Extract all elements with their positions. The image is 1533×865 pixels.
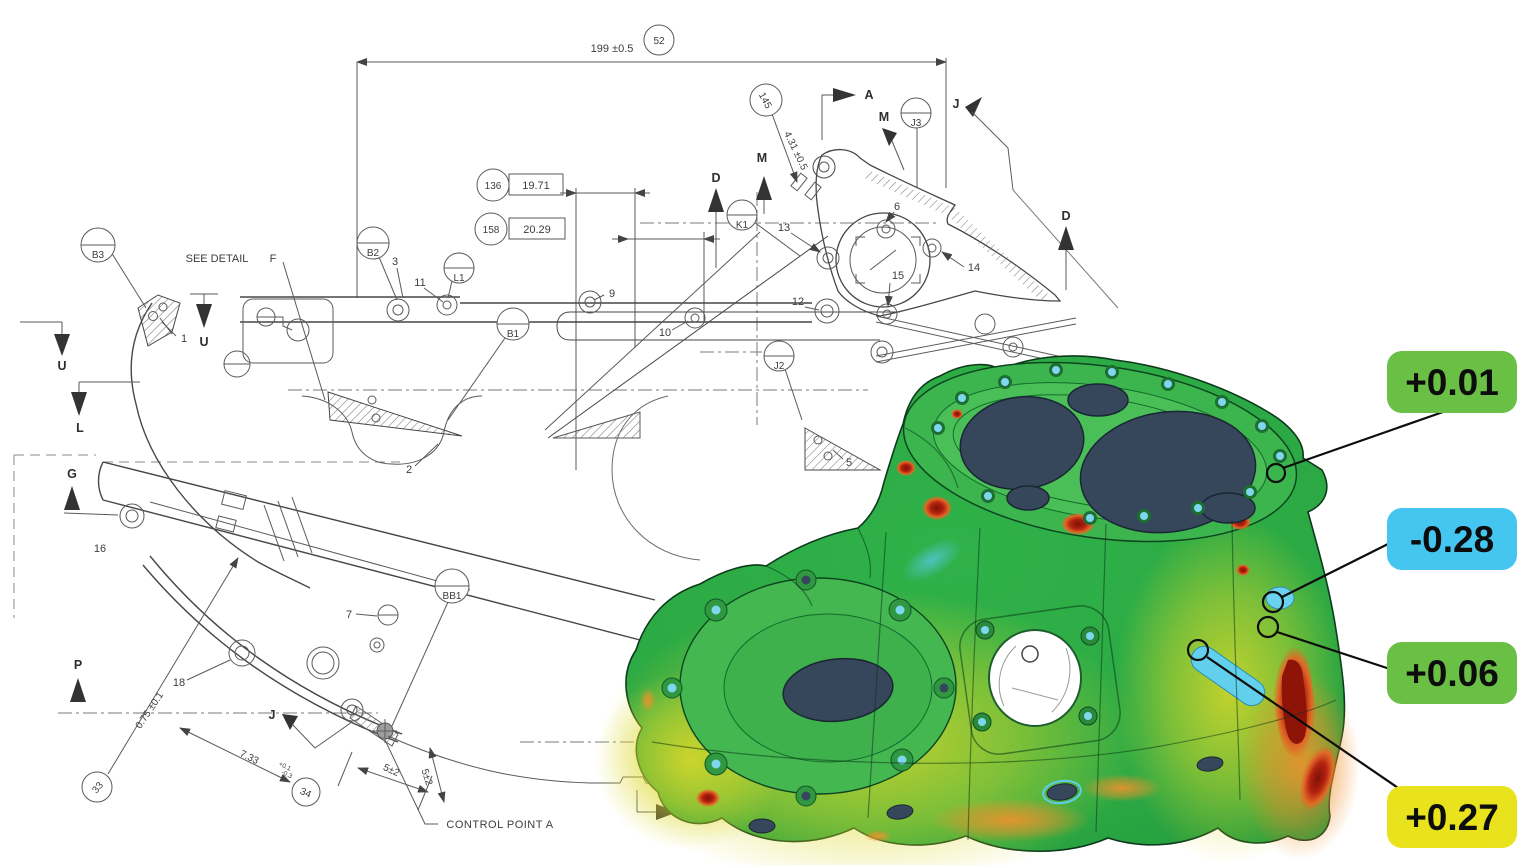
cmm-heatmap-model	[595, 339, 1360, 865]
datum-b1: B1	[507, 329, 520, 340]
view-label-j-top: J	[953, 97, 960, 111]
datum-b2: B2	[367, 248, 380, 259]
leader-line-0	[1283, 412, 1443, 468]
inspection-figure: 199 ±0.5 52 145 4.31 ±0.5 136 19.71 158 …	[0, 0, 1533, 865]
note-control-point: CONTROL POINT A	[446, 819, 553, 831]
view-label-d2: D	[1061, 209, 1070, 223]
callout-0-value: +0.01	[1405, 362, 1499, 403]
item-3: 3	[392, 256, 398, 268]
callout-1-value: -0.28	[1410, 519, 1494, 560]
view-label-a: A	[864, 88, 873, 102]
dim-5-b: 5±2	[419, 768, 435, 788]
item-14: 14	[968, 262, 980, 274]
view-label-j-bottom: J	[269, 708, 276, 722]
balloon-158: 158	[483, 225, 500, 236]
note-see-detail: SEE DETAIL	[186, 253, 249, 265]
dim-1971: 19.71	[522, 180, 550, 192]
item-11: 11	[414, 277, 425, 289]
dim-075: 0.75 ±0.1	[134, 690, 167, 731]
callout-1: -0.28	[1387, 508, 1517, 570]
callout-3: +0.27	[1387, 786, 1517, 848]
item-16: 16	[94, 543, 106, 555]
note-detail-ref: F	[270, 253, 277, 265]
dim-overall: 199 ±0.5	[591, 43, 634, 55]
item-7: 7	[346, 609, 352, 621]
item-15: 15	[892, 270, 904, 282]
callout-3-value: +0.27	[1405, 797, 1499, 838]
balloon-52: 52	[653, 36, 665, 47]
item-2: 2	[406, 464, 412, 476]
datum-g: G	[67, 467, 77, 481]
callout-2: +0.06	[1387, 642, 1517, 704]
item-13: 13	[778, 222, 790, 234]
view-label-m2: M	[757, 151, 767, 165]
item-5: 5	[846, 457, 852, 469]
item-12: 12	[792, 296, 804, 308]
view-label-m1: M	[879, 110, 889, 124]
datum-j3: J3	[911, 118, 922, 129]
datum-k1: K1	[736, 220, 749, 231]
datum-p: P	[74, 658, 82, 672]
balloon-136: 136	[485, 181, 502, 192]
item-1: 1	[181, 333, 187, 345]
datum-bb1: BB1	[443, 591, 462, 602]
dim-733-tol-lower: -0.3	[280, 769, 293, 780]
datum-j2: J2	[774, 361, 785, 372]
callout-0: +0.01	[1387, 351, 1517, 413]
dim-2029: 20.29	[523, 224, 551, 236]
item-6: 6	[894, 201, 900, 213]
datum-l1: L1	[453, 273, 465, 284]
item-9: 9	[609, 288, 615, 300]
datum-l: L	[76, 421, 84, 435]
item-18: 18	[173, 677, 185, 689]
view-label-d1: D	[711, 171, 720, 185]
through-hole	[989, 630, 1081, 726]
datum-u2: U	[199, 335, 208, 349]
datum-b3: B3	[92, 250, 105, 261]
callout-2-value: +0.06	[1405, 653, 1499, 694]
dim-733: 7.33	[238, 749, 261, 768]
datum-u1: U	[57, 359, 66, 373]
item-10: 10	[659, 327, 671, 339]
